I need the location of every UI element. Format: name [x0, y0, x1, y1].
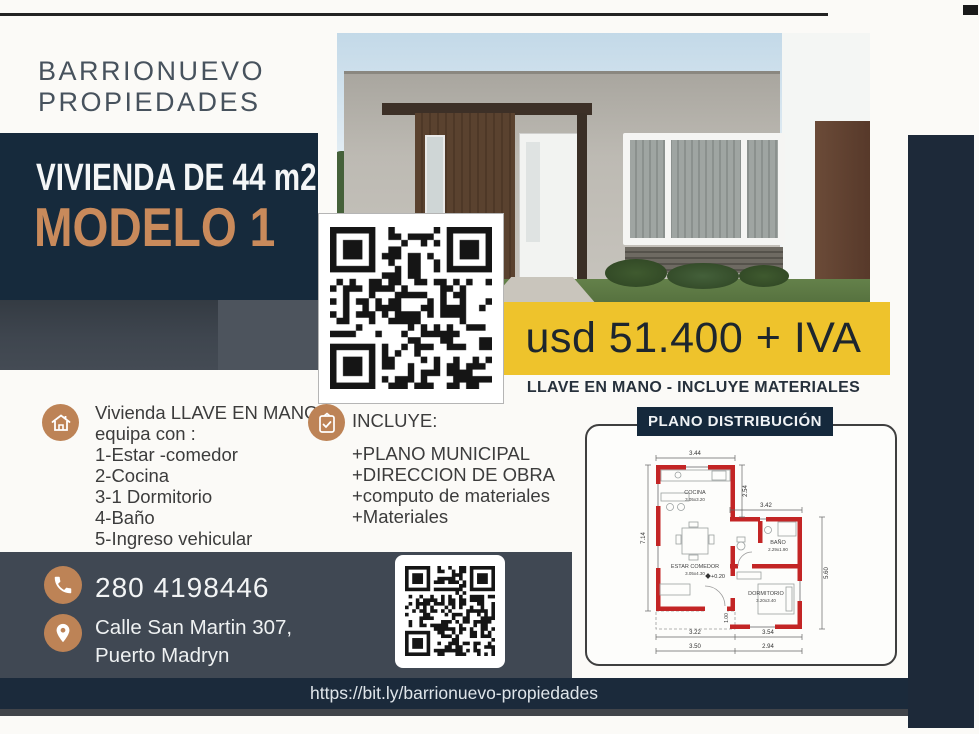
dim-top: 3.44 [689, 451, 701, 457]
features-intro-1: Vivienda LLAVE EN MANO [95, 402, 318, 423]
include-item: +DIRECCION DE OBRA [352, 464, 555, 485]
dim-kitchen-height: 2.54 [743, 485, 749, 497]
include-item: +Materiales [352, 506, 555, 527]
room-dormitorio-size: 3.20x3.40 [756, 598, 776, 603]
floorplan-title: PLANO DISTRIBUCIÓN [648, 413, 822, 430]
footer-url[interactable]: https://bit.ly/barrionuevo-propiedades [310, 683, 598, 704]
main-window [623, 133, 785, 245]
address-line1: Calle San Martin 307, [95, 614, 292, 642]
room-cocina-size: 3.05x3.20 [685, 497, 705, 502]
location-badge [44, 614, 82, 652]
window-divider-2 [741, 140, 747, 238]
includes-list: +PLANO MUNICIPAL +DIRECCION DE OBRA +com… [352, 443, 555, 527]
include-item: +computo de materiales [352, 485, 555, 506]
price-tagline: LLAVE EN MANO - INCLUYE MATERIALES [497, 379, 890, 397]
price-banner: usd 51.400 + IVA [497, 302, 890, 375]
headline-model: MODELO 1 [34, 195, 275, 259]
map-pin-icon [52, 622, 74, 644]
address-line2: Puerto Madryn [95, 642, 292, 670]
room-estar: ESTAR COMEDOR [671, 564, 719, 570]
front-door [519, 133, 579, 283]
house-feature-badge [42, 404, 79, 441]
dim-step: 1.00 [724, 613, 730, 623]
price-amount: usd 51.400 + IVA [526, 314, 862, 363]
address: Calle San Martin 307, Puerto Madryn [95, 614, 292, 670]
window-divider [665, 140, 671, 238]
qr-code-small [405, 566, 495, 656]
headline-size: VIVIENDA DE 44 m2 [36, 157, 317, 200]
room-dormitorio: DORMITORIO [748, 591, 784, 597]
phone-number: 280 4198446 [95, 572, 270, 604]
phone-badge [44, 566, 82, 604]
feature-item: 2-Cocina [95, 465, 318, 486]
brand-logo: BARRIONUEVO PROPIEDADES [38, 56, 265, 119]
door-glass [526, 142, 540, 242]
features-intro-2: equipa con : [95, 423, 318, 444]
side-fence [815, 121, 870, 279]
house-icon [49, 411, 73, 435]
feature-item: 5-Ingreso vehicular [95, 528, 318, 549]
footer-gray-strip [0, 709, 960, 716]
level-marker [705, 573, 711, 579]
headline-block: VIVIENDA DE 44 m2 MODELO 1 [0, 133, 318, 300]
shrub-2 [667, 263, 739, 289]
floorplan-title-box: PLANO DISTRIBUCIÓN [637, 407, 833, 436]
room-bano-size: 2.29x1.90 [768, 547, 788, 552]
include-item: +PLANO MUNICIPAL [352, 443, 555, 464]
dark-strip [0, 300, 318, 370]
room-estar-size: 3.05x4.30 [685, 571, 705, 576]
entry-shadow [577, 113, 587, 281]
dim-bottom-left-outer: 3.50 [689, 644, 701, 650]
top-right-mark [963, 5, 978, 15]
dim-bottom-right-outer: 2.94 [762, 644, 774, 650]
feature-item: 3-1 Dormitorio [95, 486, 318, 507]
feature-item: 4-Baño [95, 507, 318, 528]
dark-strip-light-segment [218, 300, 318, 370]
clipboard-check-icon [315, 411, 339, 435]
dim-right-width: 3.42 [760, 503, 772, 509]
feature-item: 1-Estar -comedor [95, 444, 318, 465]
phone-icon [52, 574, 74, 596]
shrub-3 [739, 265, 789, 287]
right-navy-band [908, 135, 974, 728]
entry-sidelight [425, 135, 445, 215]
dim-left: 7.14 [641, 532, 647, 544]
room-cocina: COCINA [684, 490, 706, 496]
includes-title: INCLUYE: [352, 410, 437, 431]
qr-panel-small [395, 555, 505, 668]
qr-panel-large [318, 213, 504, 404]
features-list: Vivienda LLAVE EN MANO equipa con : 1-Es… [95, 402, 318, 549]
brand-line2: PROPIEDADES [38, 87, 265, 118]
brand-line1: BARRIONUEVO [38, 56, 265, 87]
floor-plan: 3.44 7.14 2.54 3.42 5.60 3.22 3.54 3.50 … [600, 446, 880, 658]
dim-level: +0.20 [711, 574, 725, 580]
dim-bottom-left-inner: 3.22 [689, 630, 701, 636]
qr-code-large [330, 227, 492, 389]
includes-badge [308, 404, 345, 441]
dim-bottom-right-inner: 3.54 [762, 630, 774, 636]
footer-url-bar[interactable]: https://bit.ly/barrionuevo-propiedades [0, 678, 908, 709]
flyer-canvas: BARRIONUEVO PROPIEDADES VIVIENDA DE 44 m… [0, 0, 979, 734]
window-blinds [630, 140, 778, 238]
dim-right-height: 5.60 [824, 567, 830, 579]
top-divider-line [0, 13, 828, 16]
shrub-1 [605, 259, 667, 287]
room-bano: BAÑO [770, 539, 786, 546]
